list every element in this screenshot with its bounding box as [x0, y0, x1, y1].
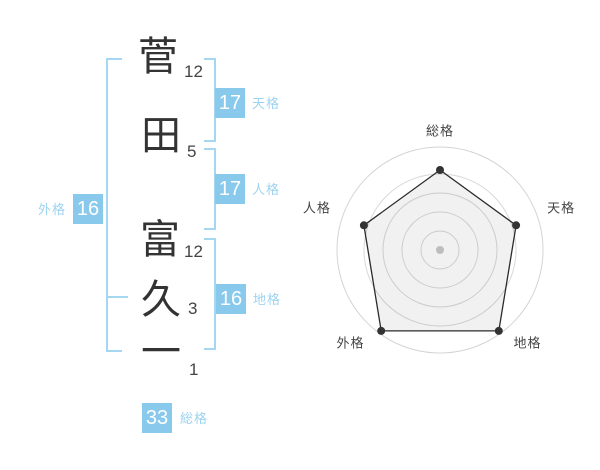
- radar-data-point: [377, 327, 385, 335]
- stroke-count: 12: [184, 63, 214, 80]
- stroke-count: 5: [187, 143, 217, 160]
- radar-axis-label: 人格: [303, 197, 331, 216]
- radar-center-dot: [436, 246, 444, 254]
- chikaku-bracket-tick-top: [204, 238, 216, 240]
- chikaku-score-box: 16: [216, 284, 246, 314]
- tenkaku-label: 天格: [252, 96, 280, 111]
- name-character: 田: [139, 116, 183, 156]
- stroke-count: 1: [189, 361, 219, 378]
- radar-axis-label: 外格: [336, 333, 364, 352]
- gaikaku-score-box: 16: [73, 194, 103, 224]
- gaikaku-label: 外格: [38, 202, 66, 217]
- radar-chart: 総格天格地格外格人格: [0, 0, 600, 470]
- name-character: 久: [139, 280, 183, 320]
- stroke-count: 3: [188, 300, 218, 317]
- gaikaku-bracket-tick-mid: [106, 296, 128, 298]
- radar-chart-svg: [310, 110, 580, 360]
- gaikaku-bracket-line: [106, 58, 108, 352]
- radar-grid-ring: [383, 193, 497, 307]
- name-character: 菅: [136, 37, 180, 77]
- tenkaku-bracket-tick-bottom: [204, 140, 216, 142]
- radar-axis-label: 天格: [547, 197, 575, 216]
- radar-axis-label: 総格: [426, 121, 454, 140]
- radar-grid-ring: [337, 147, 543, 353]
- tenkaku-bracket-tick-top: [204, 58, 216, 60]
- radar-data-point: [436, 166, 444, 174]
- gaikaku-bracket-tick-top: [106, 58, 122, 60]
- soukaku-score-box: 33: [142, 403, 172, 433]
- name-character: 富: [138, 220, 182, 260]
- radar-data-point: [512, 221, 520, 229]
- radar-data-point: [495, 327, 503, 335]
- jinkaku-label: 人格: [252, 182, 280, 197]
- stroke-count: 12: [184, 243, 214, 260]
- radar-data-polygon: [364, 170, 516, 331]
- chikaku-label: 地格: [253, 292, 281, 307]
- radar-data-point: [360, 221, 368, 229]
- gaikaku-bracket-tick-bottom: [106, 350, 122, 352]
- radar-axis-label: 地格: [514, 333, 542, 352]
- radar-grid-ring: [402, 212, 478, 288]
- name-fortune-page: 菅 田 富 久 一 12 5 12 3 1 17 天格 17 人格 16 地格 …: [0, 0, 600, 470]
- jinkaku-bracket-tick-bottom: [204, 228, 216, 230]
- radar-grid-ring: [364, 174, 516, 326]
- radar-grid-ring: [421, 231, 459, 269]
- jinkaku-score-box: 17: [215, 174, 245, 204]
- tenkaku-score-box: 17: [215, 88, 245, 118]
- chikaku-bracket-tick-bottom: [204, 348, 216, 350]
- name-character: 一: [139, 332, 183, 372]
- soukaku-label: 総格: [180, 411, 208, 426]
